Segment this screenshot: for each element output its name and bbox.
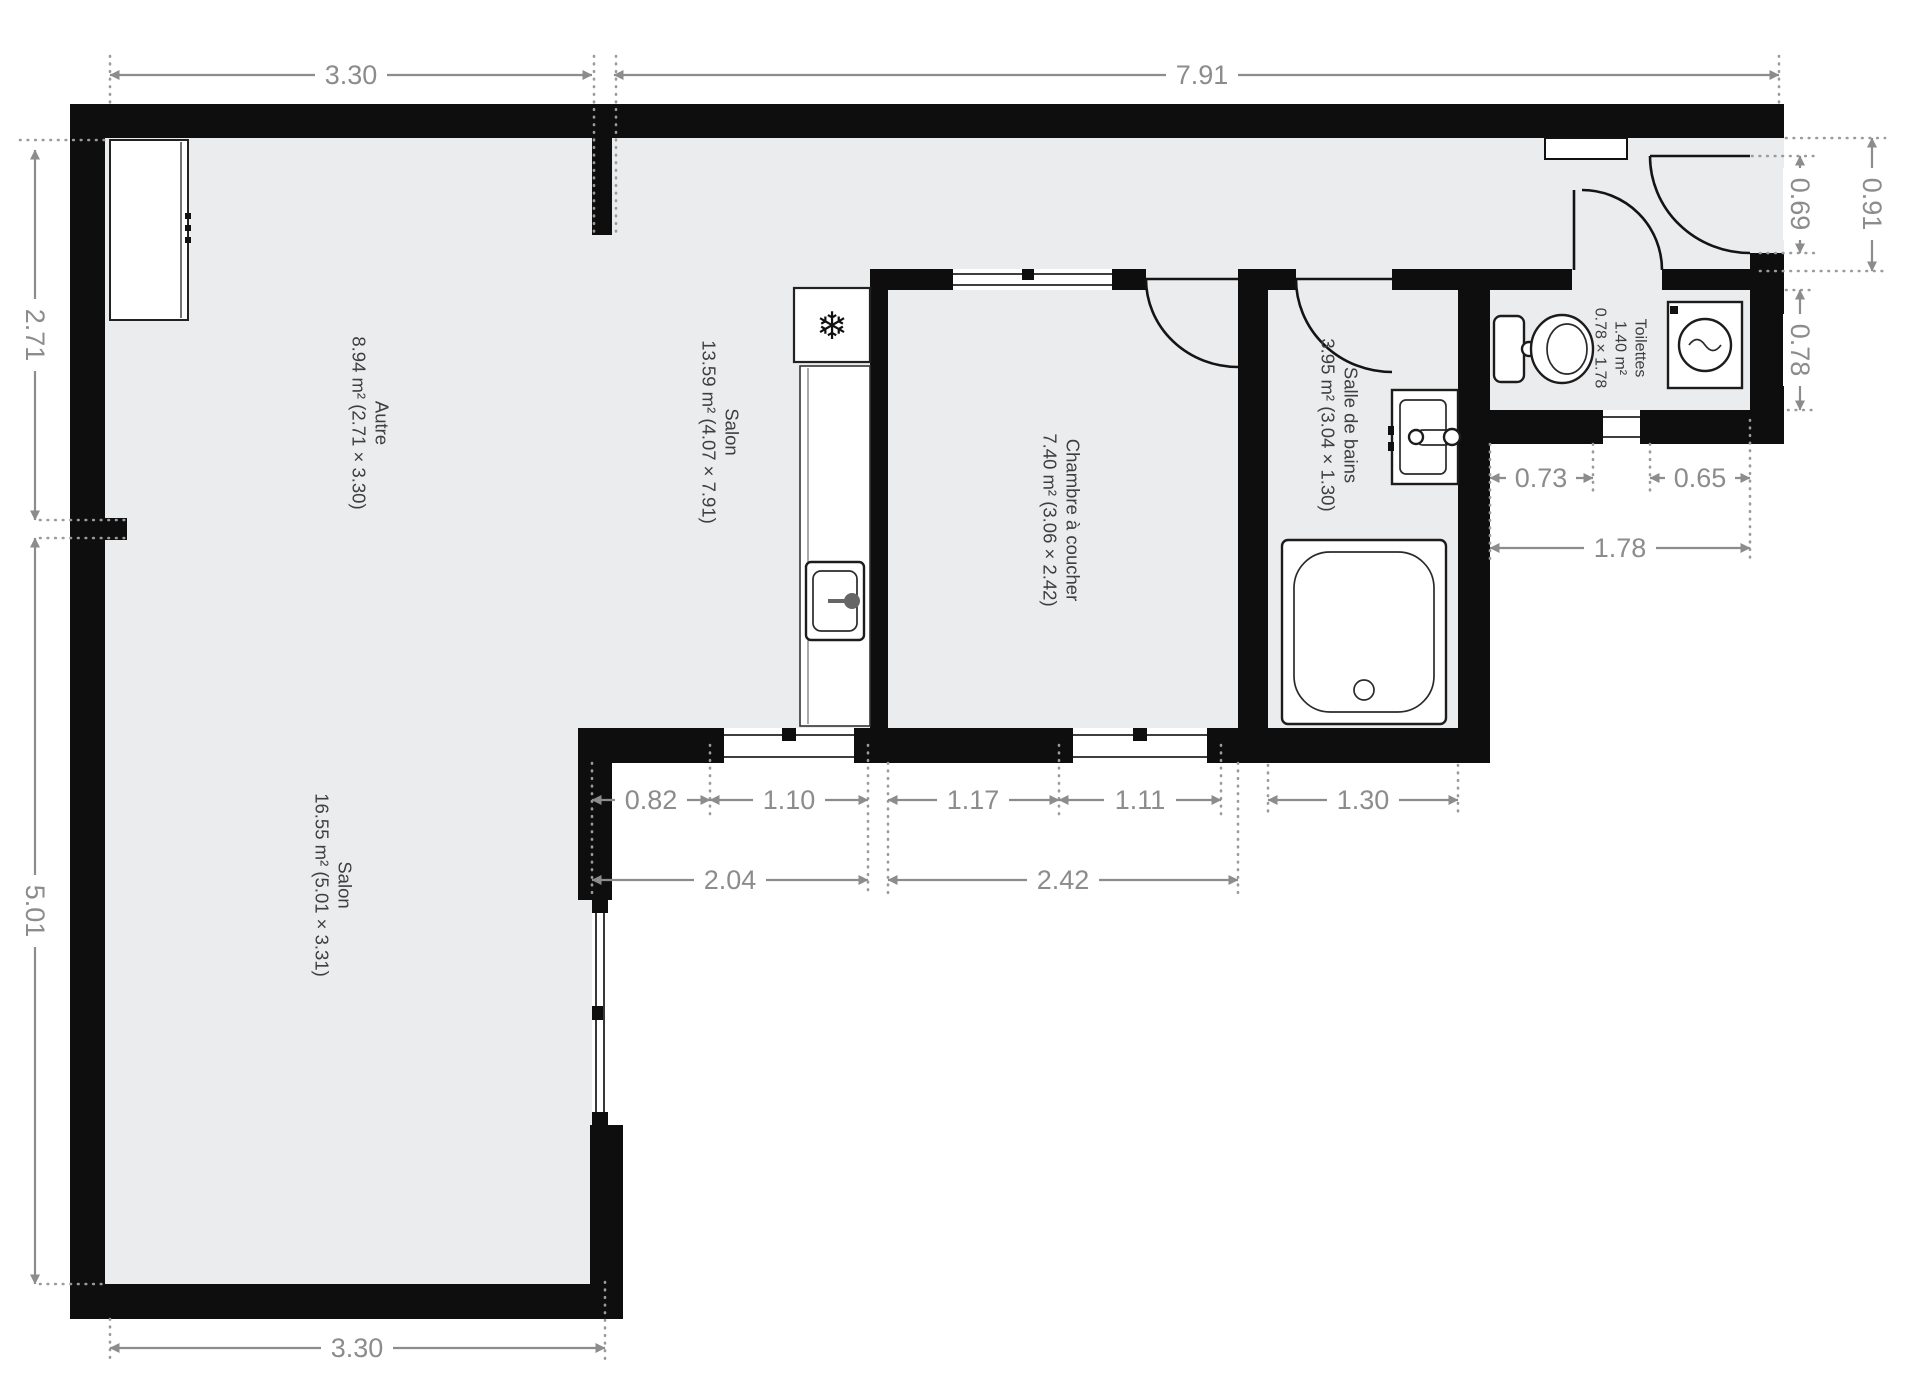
wall-chambre-left [870,269,888,728]
wardrobe-tick [185,225,191,231]
dimension-label: 0.82 [625,785,678,815]
dim-top-salon: 7.91 [614,58,1779,92]
room-name: Salon [335,861,356,908]
sink-tap-tick [1388,442,1394,451]
dimension-label: 2.42 [1037,865,1090,895]
floor-plan-page: ❄ [0,0,1920,1395]
window-toilettes [1593,410,1650,444]
window-cap [1112,269,1125,290]
room-area: 7.40 m² (3.06 × 2.42) [1040,433,1061,606]
dimension-label: 3.30 [325,60,378,90]
wardrobe-tick [185,213,191,219]
wall-bottom-band-segment [868,728,1059,763]
dim-chambre-span: 2.42 [888,863,1238,897]
dim-toilettes-window: 0.65 [1650,461,1750,495]
wall-bottom [70,1284,623,1319]
dim-salon-window: 1.10 [710,783,868,817]
dimension-label: 1.30 [1337,785,1390,815]
dimension-label: 1.11 [1115,785,1166,815]
dim-right-toilettes: 0.78 [1783,290,1817,410]
room-name: Salle de bains [1341,367,1362,483]
dimension-label: 3.30 [331,1333,384,1363]
dim-chambre-offset: 1.17 [888,783,1059,817]
wardrobe-tick [185,237,191,243]
dim-left-lower: 5.01 [18,538,52,1284]
wall-toilettes-bottom-segment [1650,410,1784,444]
window-tick [592,1006,603,1020]
dim-chambre-window: 1.11 [1059,783,1221,817]
wall-toilettes-bottom-segment [1458,410,1593,444]
wall-band-segment [1125,269,1146,290]
room-name: Chambre à coucher [1063,439,1084,601]
window-tick [1133,728,1147,741]
sink-faucet-knob [1444,429,1460,445]
dimension-label: 1.78 [1594,533,1647,563]
wall-band-segment [1392,269,1458,290]
bathtub [1282,540,1446,724]
dim-toilettes-width: 1.78 [1490,531,1750,565]
washing-machine [1668,302,1742,388]
wall-band-segment [888,269,940,290]
dimension-label: 0.78 [1785,324,1815,377]
snowflake-icon: ❄ [816,306,848,348]
kitchen-counter [800,366,870,726]
wall-band-segment [1662,269,1750,290]
dim-toilettes-left: 0.73 [1490,461,1593,495]
dimension-label: 2.04 [704,865,757,895]
wardrobe-body [110,140,188,320]
toilet-tank [1494,316,1524,382]
dimension-label: 0.91 [1857,178,1887,231]
room-area: 8.94 m² (2.71 × 3.30) [349,336,370,509]
dim-sdb-width: 1.30 [1268,783,1458,817]
window-lower-salon-right [592,900,608,1125]
dim-right-total: 0.91 [1855,138,1889,271]
dim-bottom: 3.30 [110,1331,605,1365]
dimension-label: 2.71 [20,309,50,362]
room-size: 0.78 × 1.78 [1592,308,1609,389]
window-cap [940,269,953,290]
window-cap [1640,410,1650,444]
window-cap [1593,410,1603,444]
wall-top [70,104,1784,138]
washer-drawer [1670,306,1678,314]
floor-areas [105,138,1784,1284]
wall-chambre-right [1238,269,1268,728]
window-cap [1059,728,1073,763]
dim-top-autre: 3.30 [110,58,592,92]
room-name: Toilettes [1632,319,1649,378]
dimension-label: 0.73 [1515,463,1568,493]
wardrobe [110,140,191,320]
dimension-label: 1.10 [763,785,816,815]
wall-bottom-band-segment [578,728,710,763]
wall-lower-salon-right [590,1125,623,1319]
window-cap [1207,728,1221,763]
wall-band-segment [1490,269,1572,290]
window-tick [782,728,796,741]
window-cap [710,728,724,763]
dimension-label: 0.69 [1785,178,1815,231]
wall-left [70,104,105,1319]
floor-plan-svg: ❄ [0,0,1920,1395]
wall-niche [1545,138,1627,159]
wall-band-segment [1268,269,1296,290]
dimension-label: 5.01 [20,885,50,938]
kitchen-faucet [844,593,860,609]
room-name: Autre [372,401,393,445]
dim-salon-span: 2.04 [592,863,868,897]
window-cap [592,900,608,913]
room-name: Salon [722,408,743,455]
window-salon-bottom [710,728,868,763]
sink-faucet-knob [1409,430,1423,444]
wall-sdb-right [1458,269,1490,763]
dim-left-upper: 2.71 [18,150,52,520]
window-chambre-top [940,269,1125,290]
bathroom-sink [1388,390,1460,484]
kitchen: ❄ [794,288,870,726]
bathtub-outer [1282,540,1446,724]
wall-bottom-band-segment [1221,728,1490,763]
window-tick [1022,269,1034,280]
sink-tap-tick [1388,426,1394,435]
room-area: 3.95 m² (3.04 × 1.30) [1318,338,1339,511]
dimension-label: 0.65 [1674,463,1727,493]
room-area: 1.40 m² [1612,321,1629,376]
toilet [1494,315,1593,383]
dim-right-entry: 0.69 [1783,156,1817,253]
window-chambre-bottom [1059,728,1221,763]
dimension-label: 1.17 [947,785,1000,815]
room-area: 16.55 m² (5.01 × 3.31) [312,793,333,977]
window-cap [854,728,868,763]
room-area: 13.59 m² (4.07 × 7.91) [699,340,720,524]
window-cap [592,1112,608,1125]
dimension-label: 7.91 [1176,60,1229,90]
